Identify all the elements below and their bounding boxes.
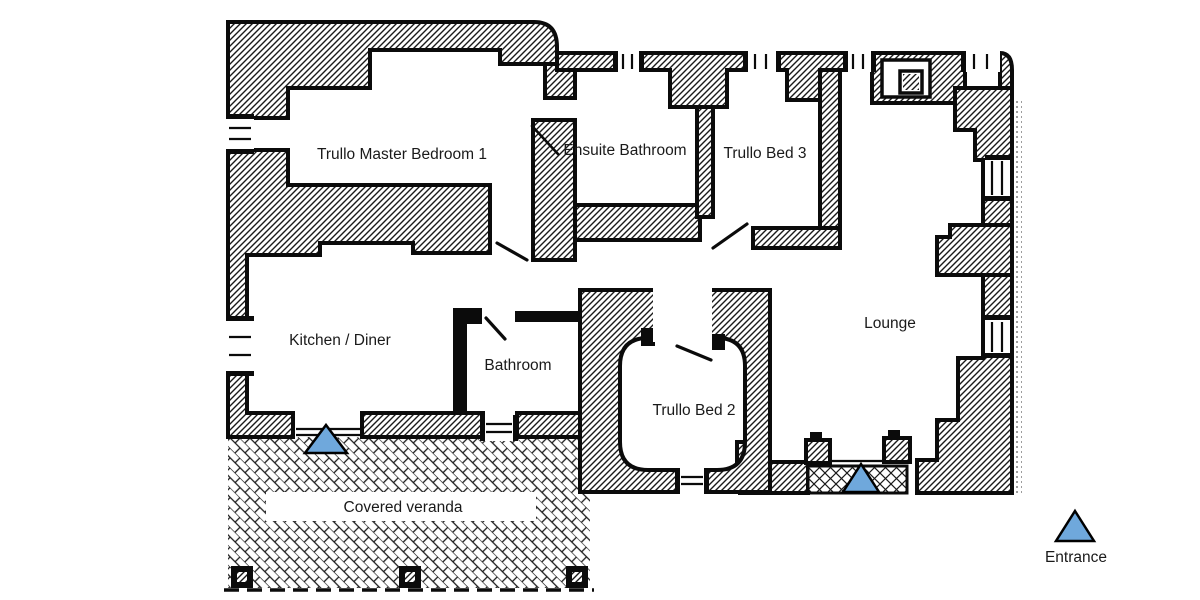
wall-top-band-1 [557,53,617,70]
wall-ensuite-bed3-divider [697,107,713,217]
window-north-4 [961,51,1000,72]
window-east-1 [985,155,1010,201]
bathroom-door-line [486,318,505,339]
wall-bathroom-north-left [453,308,482,324]
veranda-column [566,566,588,588]
pillar-nub-left [810,432,822,441]
wall-ensuite-south [575,205,700,240]
exterior-rubble-texture [1013,100,1022,495]
bed2-door-opening [653,286,712,342]
window-east-2 [985,315,1010,358]
bed2-door-jamb-right [712,334,725,350]
window-west-1 [226,114,254,154]
wall-bed3-lounge-divider [820,70,840,230]
master-bedroom-door-line [497,243,527,260]
wall-top-left-block [228,22,557,118]
legend-entrance: Entrance [1045,511,1107,566]
room-label-bathroom: Bathroom [484,357,551,374]
room-label-lounge: Lounge [864,315,916,332]
wall-kitchen-south [362,413,483,437]
veranda-column [399,566,421,588]
wall-bathroom-north-right [515,311,580,322]
room-label-kitchen-diner: Kitchen / Diner [289,332,391,349]
floor-plan-svg: Trullo Master Bedroom 1 Ensuite Bathroom… [0,0,1200,600]
wall-right-mid-step [937,225,1012,275]
wall-bathroom-south [517,413,587,437]
room-label-covered-veranda: Covered veranda [344,499,463,516]
bed3-door-line [713,224,747,248]
wall-top-band-2 [640,53,747,107]
wall-master-ensuite-divider [533,120,575,260]
pillar-nub-right [888,430,900,439]
entrance-legend-label: Entrance [1045,549,1107,566]
window-west-2 [226,316,254,376]
room-label-ensuite-bathroom: Ensuite Bathroom [563,142,686,159]
room-label-trullo-bed-2: Trullo Bed 2 [653,402,736,419]
room-label-trullo-bed-3: Trullo Bed 3 [724,145,807,162]
window-bathroom-south [480,415,518,441]
window-north-2 [743,51,781,72]
bed2-door-jamb-left [641,328,655,346]
wall-top-right-corner [1000,53,1012,90]
entrance-legend-icon [1056,511,1094,541]
window-north-1 [613,51,644,72]
window-bed2-south [675,468,709,494]
wall-bed3-south [753,228,840,248]
wall-kitchen-bathroom-thin [453,318,467,415]
wall-right-upper-step [955,88,1012,160]
flue-detail [882,60,930,97]
window-north-3 [843,51,876,72]
wall-left-bottom-corner [228,372,293,437]
wall-left-and-bedroom-kitchen-divider [228,150,490,320]
lounge-door-pillar-left [806,440,830,463]
lounge-door-pillar-right [884,438,910,462]
bed2-door-line [677,346,711,360]
veranda-column [231,566,253,588]
floor-plan-canvas: Trullo Master Bedroom 1 Ensuite Bathroom… [0,0,1200,600]
room-label-master-bedroom: Trullo Master Bedroom 1 [317,146,487,163]
